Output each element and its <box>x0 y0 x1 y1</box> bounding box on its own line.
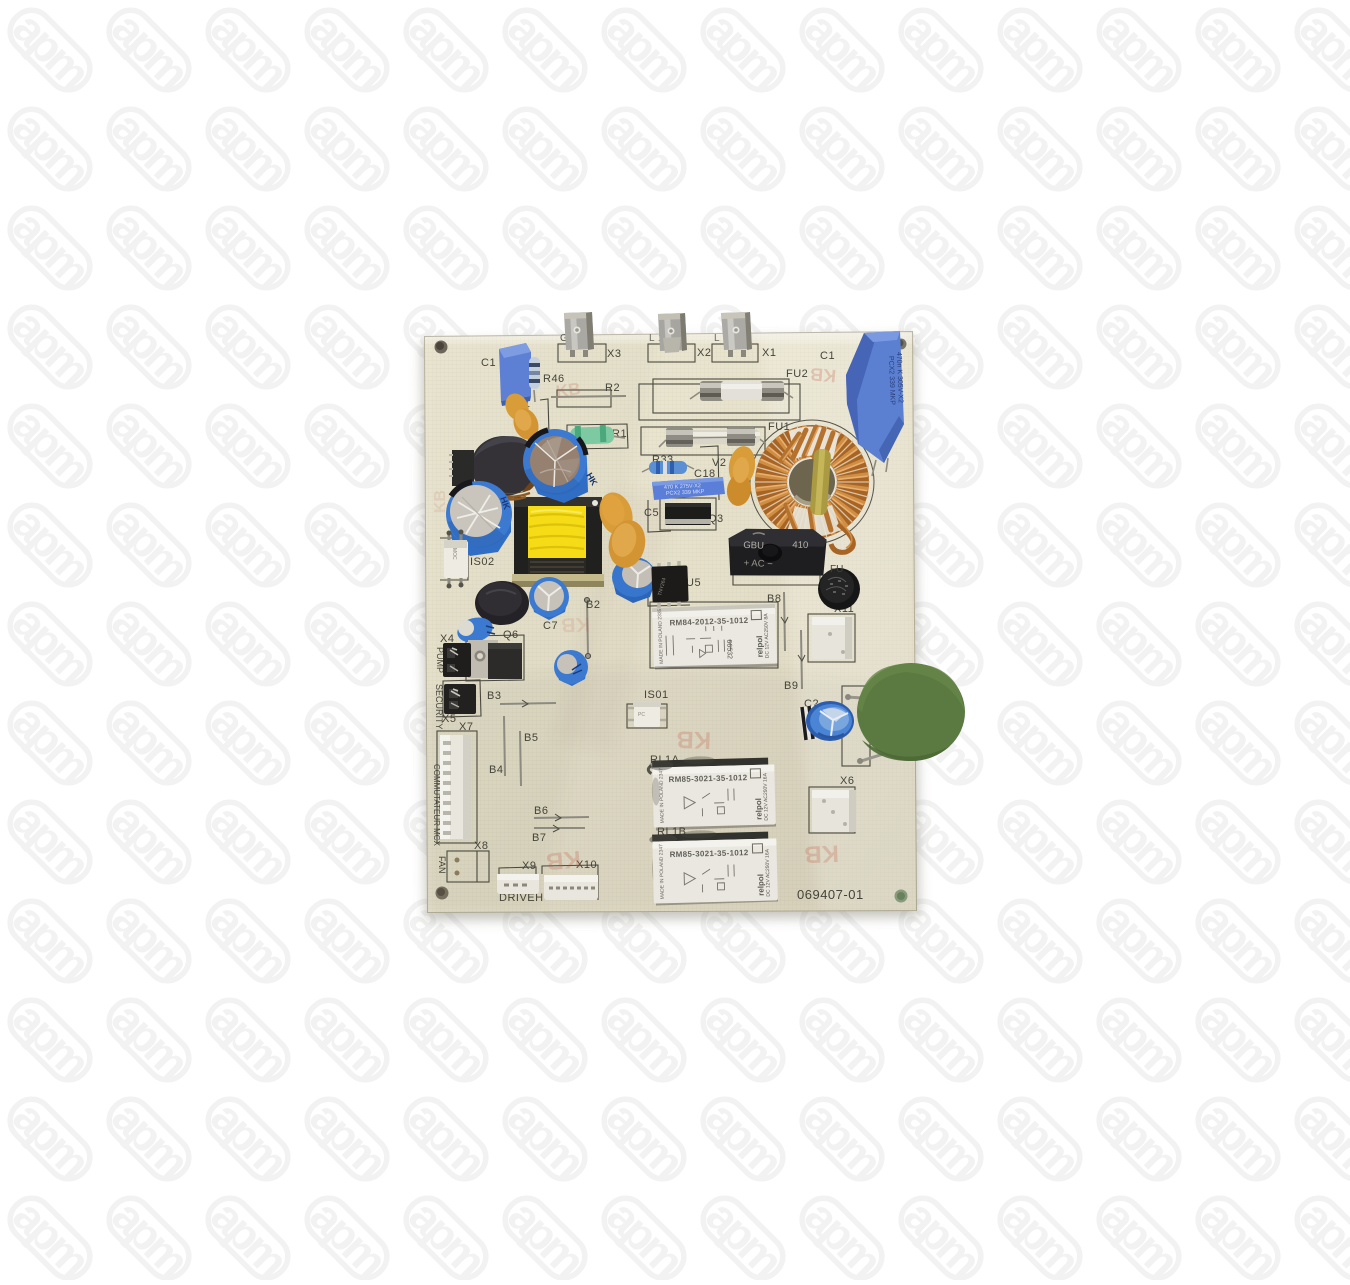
svg-text:X6: X6 <box>840 775 854 787</box>
svg-text:R2: R2 <box>605 382 620 394</box>
svg-text:+ AC −: + AC − <box>744 558 774 570</box>
svg-text:DC 12V AC250V 16A: DC 12V AC250V 16A <box>762 772 769 820</box>
svg-text:U5: U5 <box>686 577 701 589</box>
svg-text:C7: C7 <box>543 620 558 632</box>
svg-text:66532: 66532 <box>725 639 733 659</box>
svg-text:B7: B7 <box>532 832 546 844</box>
svg-text:IS01: IS01 <box>644 689 669 701</box>
svg-text:X7: X7 <box>459 721 473 733</box>
svg-text:SECURITY: SECURITY <box>434 684 444 730</box>
svg-text:C1: C1 <box>481 357 496 369</box>
svg-text:B2: B2 <box>586 599 600 611</box>
svg-text:IS02: IS02 <box>470 556 495 568</box>
svg-text:KB: KB <box>561 613 591 636</box>
svg-text:KB: KB <box>809 364 837 386</box>
svg-text:B9: B9 <box>784 680 798 692</box>
svg-text:X1: X1 <box>762 347 776 359</box>
svg-text:COMMUTATEUR MCX: COMMUTATEUR MCX <box>432 764 441 847</box>
svg-text:PC: PC <box>638 712 645 718</box>
svg-text:FU: FU <box>830 564 843 575</box>
svg-text:GBU: GBU <box>743 540 764 552</box>
svg-text:B5: B5 <box>524 732 538 744</box>
svg-text:B4: B4 <box>489 764 503 776</box>
svg-text:KB: KB <box>676 725 712 753</box>
svg-text:KB: KB <box>432 490 449 513</box>
svg-text:X9: X9 <box>522 860 536 872</box>
svg-text:069407-01: 069407-01 <box>797 887 864 902</box>
svg-text:KB: KB <box>555 379 582 401</box>
svg-text:FAN: FAN <box>437 856 447 874</box>
svg-text:FU2: FU2 <box>786 368 808 380</box>
svg-text:KB: KB <box>545 845 582 875</box>
svg-text:X8: X8 <box>474 840 488 852</box>
svg-text:B6: B6 <box>534 805 548 817</box>
svg-text:MOC: MOC <box>451 548 457 560</box>
svg-text:X3: X3 <box>607 348 621 360</box>
svg-text:C5: C5 <box>644 507 659 519</box>
svg-text:B3: B3 <box>487 690 501 702</box>
svg-text:Q6: Q6 <box>503 629 519 641</box>
svg-text:C1: C1 <box>820 350 835 362</box>
svg-text:KB: KB <box>804 840 840 868</box>
svg-text:410: 410 <box>792 540 808 552</box>
svg-text:X2: X2 <box>697 347 711 359</box>
svg-text:DC 12V AC250V 16A: DC 12V AC250V 16A <box>765 848 772 896</box>
svg-text:B8: B8 <box>767 593 781 605</box>
